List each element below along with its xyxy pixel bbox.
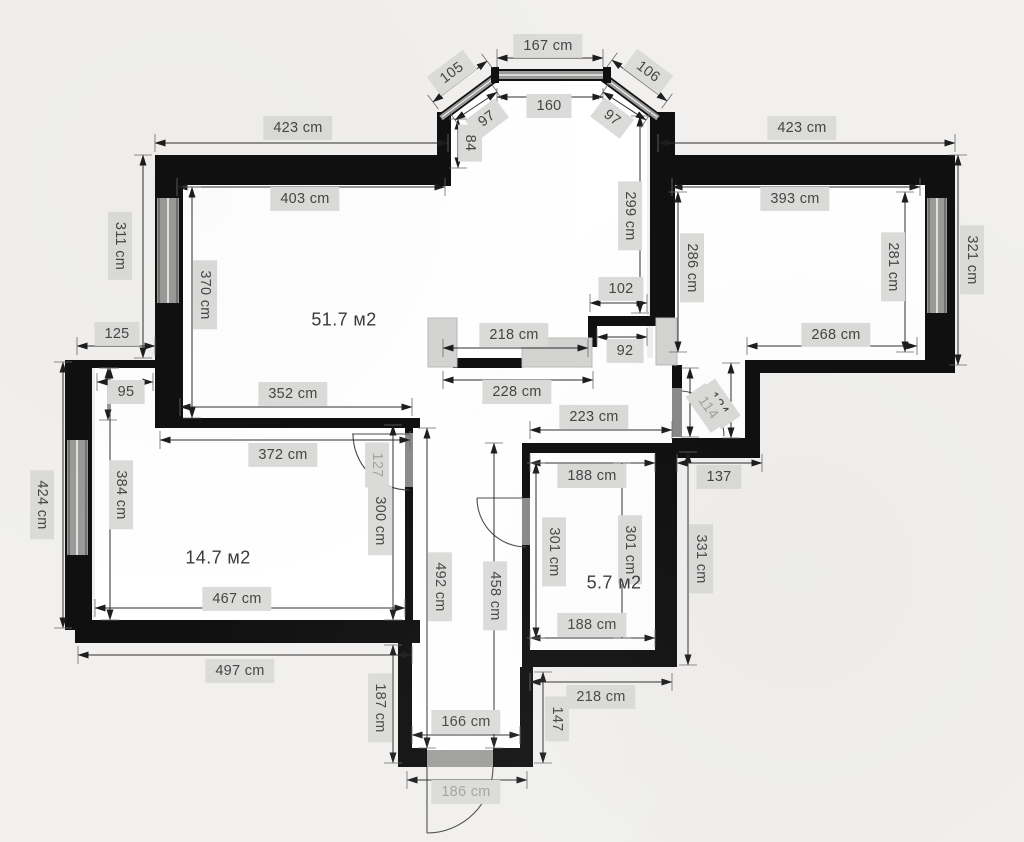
entry-door xyxy=(427,750,493,833)
dimension-tick xyxy=(607,53,618,67)
dimension-tick xyxy=(662,94,673,108)
floor-plan-canvas: 167 cm105106160979784423 cm423 cm403 cm3… xyxy=(0,0,1024,842)
right-room-floor xyxy=(675,185,925,360)
floor-plan-drawing xyxy=(0,0,1024,842)
dimension-tick xyxy=(482,54,493,68)
right-room-window xyxy=(927,198,947,313)
storage-room-floor xyxy=(530,453,655,650)
kitchen-cabinet xyxy=(428,318,457,367)
bedroom-window xyxy=(67,440,88,555)
kitchen-passage-floor xyxy=(453,358,672,445)
dimension-tick xyxy=(428,95,439,109)
hall-cabinet xyxy=(656,318,677,365)
bedroom-floor xyxy=(95,368,405,620)
living-room-window xyxy=(157,198,179,303)
kitchen-counter xyxy=(522,338,592,367)
